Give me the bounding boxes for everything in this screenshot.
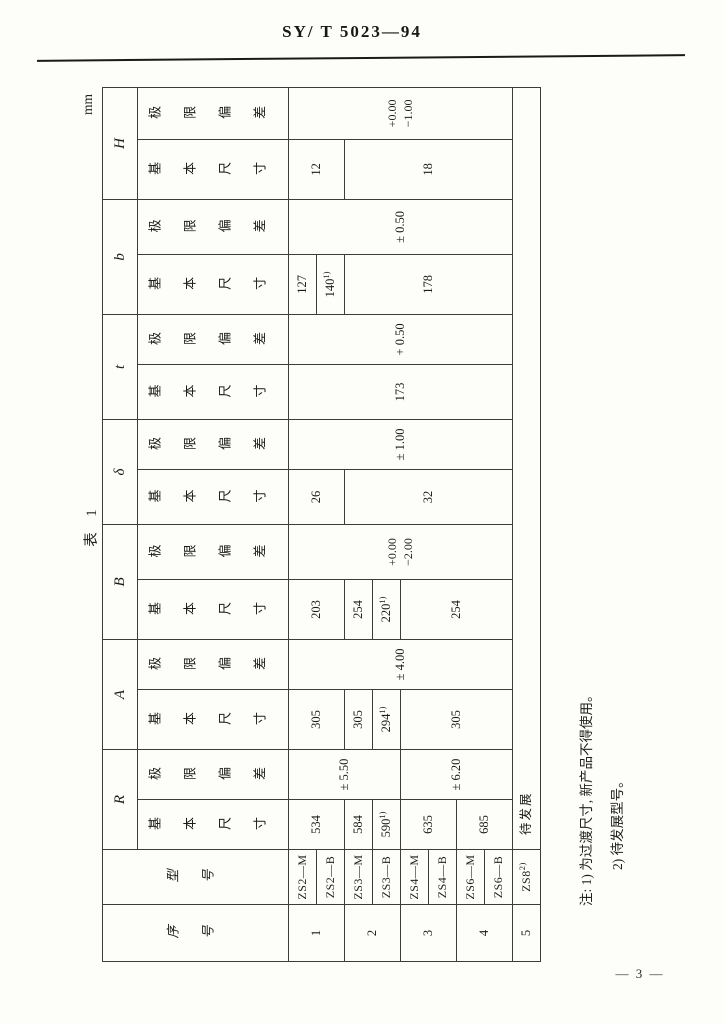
- data-cell: 26: [289, 469, 345, 524]
- note-2: 2) 待发展型号。: [606, 88, 626, 870]
- data-cell: 203: [289, 579, 345, 639]
- data-cell: + 0.50: [289, 314, 513, 364]
- model-cell: ZS4—M: [401, 850, 429, 905]
- sub-header: 极限偏差: [138, 524, 289, 579]
- data-cell: 635: [401, 800, 457, 850]
- data-cell: 305: [401, 689, 513, 749]
- sub-header: 基本尺寸: [138, 579, 289, 639]
- data-cell: ± 1.00: [289, 419, 513, 469]
- table-caption-row: 表 1 mm: [78, 88, 102, 962]
- data-cell: 178: [345, 254, 513, 314]
- sub-header: 基本尺寸: [138, 139, 289, 199]
- col-letter-delta: δ: [103, 419, 138, 524]
- data-cell: 127: [289, 254, 317, 314]
- model-cell: ZS3—M: [345, 850, 373, 905]
- data-cell: 18: [345, 139, 513, 199]
- serial-cell: 5: [513, 905, 541, 962]
- page-number: — 3 —: [608, 966, 672, 982]
- sub-header: 基本尺寸: [138, 689, 289, 749]
- data-cell: 2941): [373, 689, 401, 749]
- sub-header: 极限偏差: [138, 639, 289, 689]
- data-cell: ± 4.00: [289, 639, 513, 689]
- doc-number: SY/ T 5023—94: [0, 22, 704, 42]
- sub-header: 极限偏差: [138, 199, 289, 254]
- model-cell: ZS6—B: [485, 850, 513, 905]
- data-cell: 5901): [373, 800, 401, 850]
- data-cell: ± 6.20: [401, 749, 513, 799]
- model-cell: ZS6—M: [457, 850, 485, 905]
- serial-cell: 2: [345, 905, 401, 962]
- data-cell: 685: [457, 800, 513, 850]
- col-letter-R: R: [103, 749, 138, 849]
- col-letter-A: A: [103, 639, 138, 749]
- col-letter-H: H: [103, 87, 138, 199]
- model-cell: ZS3—B: [373, 850, 401, 905]
- data-cell: 305: [345, 689, 373, 749]
- table-notes: 注: 1) 为过渡尺寸, 新产品不得使用。 2) 待发展型号。: [575, 88, 626, 906]
- data-cell: 2201): [373, 579, 401, 639]
- col-letter-b: b: [103, 199, 138, 314]
- sub-header: 极限偏差: [138, 419, 289, 469]
- rotated-table-block: 表 1 mm 序号 型号 R A B δ t: [78, 88, 612, 962]
- pending-cell: 待发展: [513, 87, 541, 849]
- data-cell: 584: [345, 800, 373, 850]
- table-row: 5 ZS82) 待发展: [513, 87, 541, 961]
- data-cell: 173: [289, 364, 513, 419]
- model-cell: ZS82): [513, 850, 541, 905]
- data-cell: 254: [401, 579, 513, 639]
- sub-header: 基本尺寸: [138, 800, 289, 850]
- data-cell: 12: [289, 139, 345, 199]
- data-cell: 305: [289, 689, 345, 749]
- sub-header: 基本尺寸: [138, 469, 289, 524]
- serial-cell: 4: [457, 905, 513, 962]
- serial-cell: 1: [289, 905, 345, 962]
- header-model: 型号: [103, 850, 289, 905]
- sub-header: 基本尺寸: [138, 254, 289, 314]
- data-cell: ± 5.50: [289, 749, 401, 799]
- data-cell: ± 0.50: [289, 199, 513, 254]
- sub-header: 基本尺寸: [138, 364, 289, 419]
- data-cell: 254: [345, 579, 373, 639]
- sub-header: 极限偏差: [138, 314, 289, 364]
- model-cell: ZS2—B: [317, 850, 345, 905]
- data-cell: 1401): [317, 254, 345, 314]
- data-cell: 534: [289, 800, 345, 850]
- table-caption: 表 1: [80, 503, 101, 546]
- data-cell: 32: [345, 469, 513, 524]
- col-letter-t: t: [103, 314, 138, 419]
- serial-cell: 3: [401, 905, 457, 962]
- sub-header: 极限偏差: [138, 749, 289, 799]
- header-serial: 序号: [103, 905, 289, 962]
- note-1: 注: 1) 为过渡尺寸, 新产品不得使用。: [575, 88, 595, 906]
- col-letter-B: B: [103, 524, 138, 639]
- unit-label: mm: [80, 94, 96, 115]
- data-cell: +0.00−1.00: [289, 87, 513, 139]
- model-cell: ZS4—B: [429, 850, 457, 905]
- spec-table: 序号 型号 R A B δ t b H 基本尺寸 极限偏差 基本尺寸 极限偏差 …: [102, 87, 541, 962]
- data-cell: +0.00−2.00: [289, 524, 513, 579]
- header-rule: [37, 54, 685, 62]
- model-cell: ZS2—M: [289, 850, 317, 905]
- table-row: 1 ZS2—M 534 ± 5.50 305 ± 4.00 203 +0.00−…: [289, 87, 317, 961]
- sub-header: 极限偏差: [138, 87, 289, 139]
